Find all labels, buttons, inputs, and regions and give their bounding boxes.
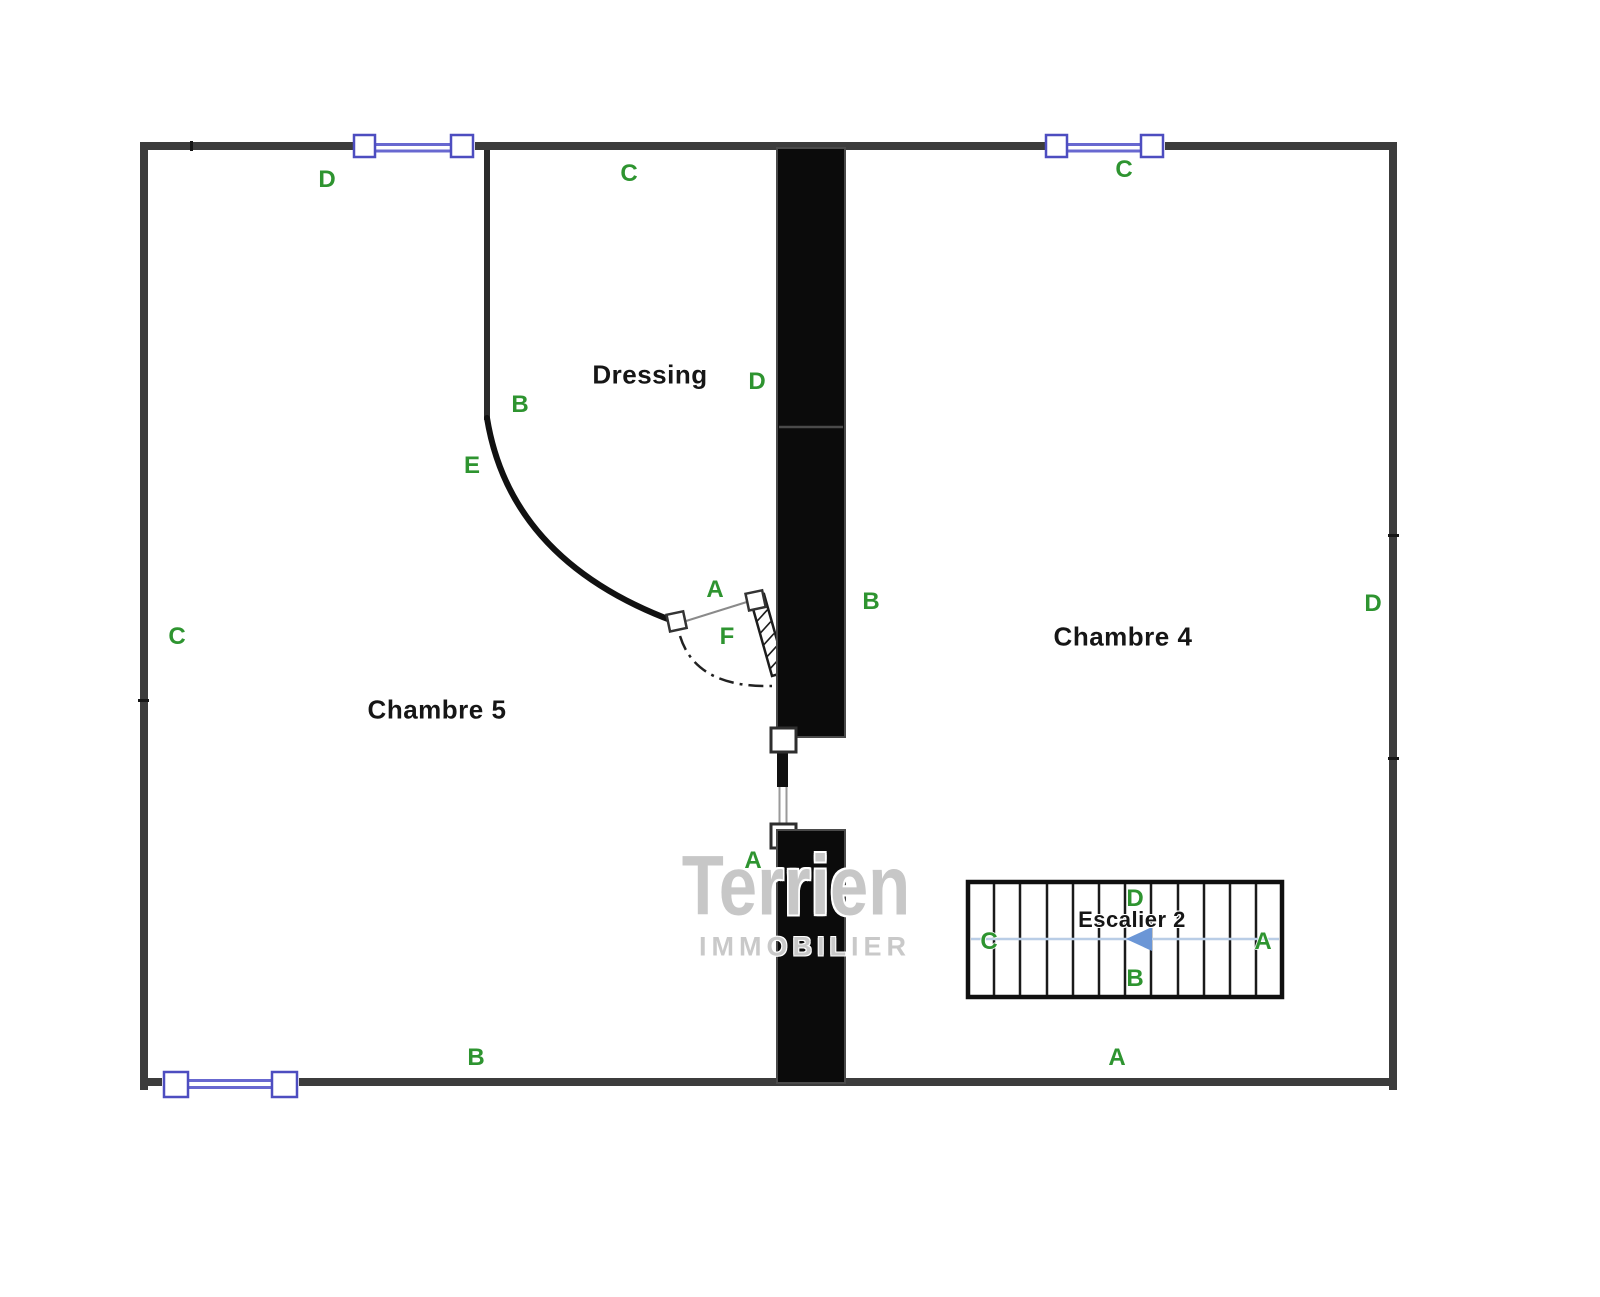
marker-dressing-door: A bbox=[706, 576, 723, 604]
marker-stair-left: C bbox=[980, 928, 997, 956]
wall-seam bbox=[138, 699, 149, 702]
marker-stair-bottom: B bbox=[1126, 965, 1143, 993]
wall-seam bbox=[1388, 534, 1399, 537]
room-label-chambre5: Chambre 5 bbox=[368, 695, 507, 726]
marker-dressing-east: D bbox=[748, 368, 765, 396]
marker-right-wall: D bbox=[1364, 590, 1381, 618]
marker-chambre4-west: B bbox=[862, 588, 879, 616]
door-hinge bbox=[746, 590, 766, 610]
floor-plan: Chambre 5 Chambre 4 Dressing Escalier 2 … bbox=[0, 0, 1600, 1297]
watermark-brand: Terrien bbox=[682, 844, 910, 928]
marker-central-passage: A bbox=[744, 847, 761, 875]
marker-curved-wall: E bbox=[464, 452, 480, 480]
marker-top-wall-right: C bbox=[1115, 156, 1132, 184]
marker-stair-top: D bbox=[1126, 885, 1143, 913]
window-top-right bbox=[1045, 135, 1165, 157]
marker-door-swing: F bbox=[720, 623, 735, 651]
marker-left-wall: C bbox=[168, 623, 185, 651]
marker-dressing-west: B bbox=[511, 391, 528, 419]
wall-seam bbox=[1388, 757, 1399, 760]
window-bottom-left bbox=[162, 1072, 299, 1097]
marker-stair-right: A bbox=[1254, 928, 1271, 956]
door-hinge bbox=[667, 611, 687, 631]
staircase bbox=[968, 882, 1282, 997]
marker-top-wall-left: D bbox=[318, 166, 335, 194]
room-label-dressing: Dressing bbox=[592, 360, 707, 391]
watermark-subtitle: IMMOBILIER bbox=[699, 932, 911, 963]
wall-seam bbox=[190, 141, 193, 151]
passage-post bbox=[771, 728, 796, 752]
marker-bottom-wall-left: B bbox=[467, 1044, 484, 1072]
marker-bottom-wall-right: A bbox=[1108, 1044, 1125, 1072]
floor-plan-drawing bbox=[0, 0, 1600, 1297]
curved-wall bbox=[487, 418, 673, 621]
central-wall-upper bbox=[777, 148, 845, 737]
room-label-chambre4: Chambre 4 bbox=[1054, 622, 1193, 653]
marker-top-wall-center: C bbox=[620, 160, 637, 188]
window-top-left bbox=[353, 135, 475, 157]
